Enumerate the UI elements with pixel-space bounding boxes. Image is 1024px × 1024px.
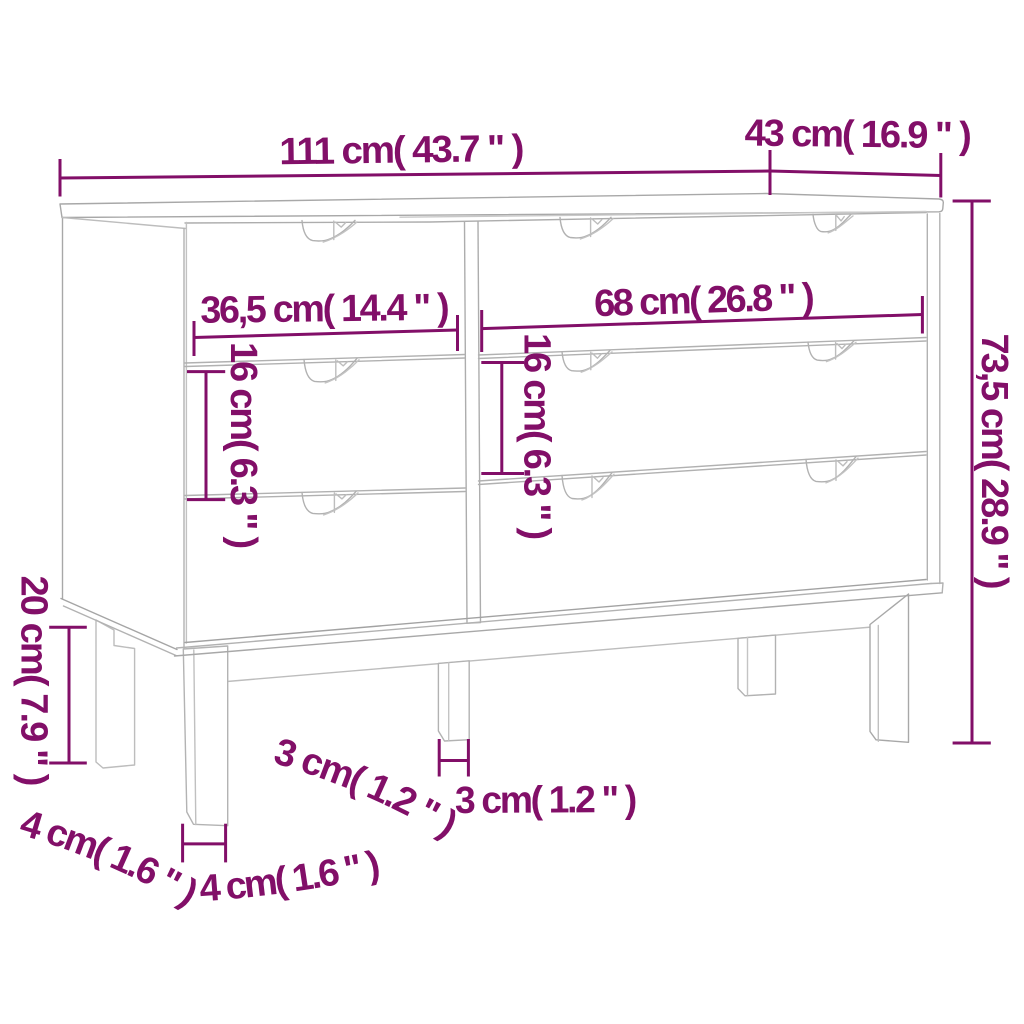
svg-text:3 cm( 1.2 " ): 3 cm( 1.2 " ) <box>455 779 636 822</box>
svg-text:73,5 cm( 28.9 " ): 73,5 cm( 28.9 " ) <box>973 334 1015 588</box>
svg-text:16 cm( 6.3 " ): 16 cm( 6.3 " ) <box>515 333 557 539</box>
svg-text:20 cm( 7.9 " ): 20 cm( 7.9 " ) <box>12 576 54 785</box>
svg-text:36,5 cm( 14.4 " ): 36,5 cm( 14.4 " ) <box>200 287 448 332</box>
svg-text:111 cm( 43.7 " ): 111 cm( 43.7 " ) <box>279 128 523 173</box>
svg-text:68 cm( 26.8 " ): 68 cm( 26.8 " ) <box>593 276 813 325</box>
svg-text:16 cm( 6.3 " ): 16 cm( 6.3 " ) <box>222 342 264 548</box>
svg-text:43 cm( 16.9 " ): 43 cm( 16.9 " ) <box>744 113 970 158</box>
